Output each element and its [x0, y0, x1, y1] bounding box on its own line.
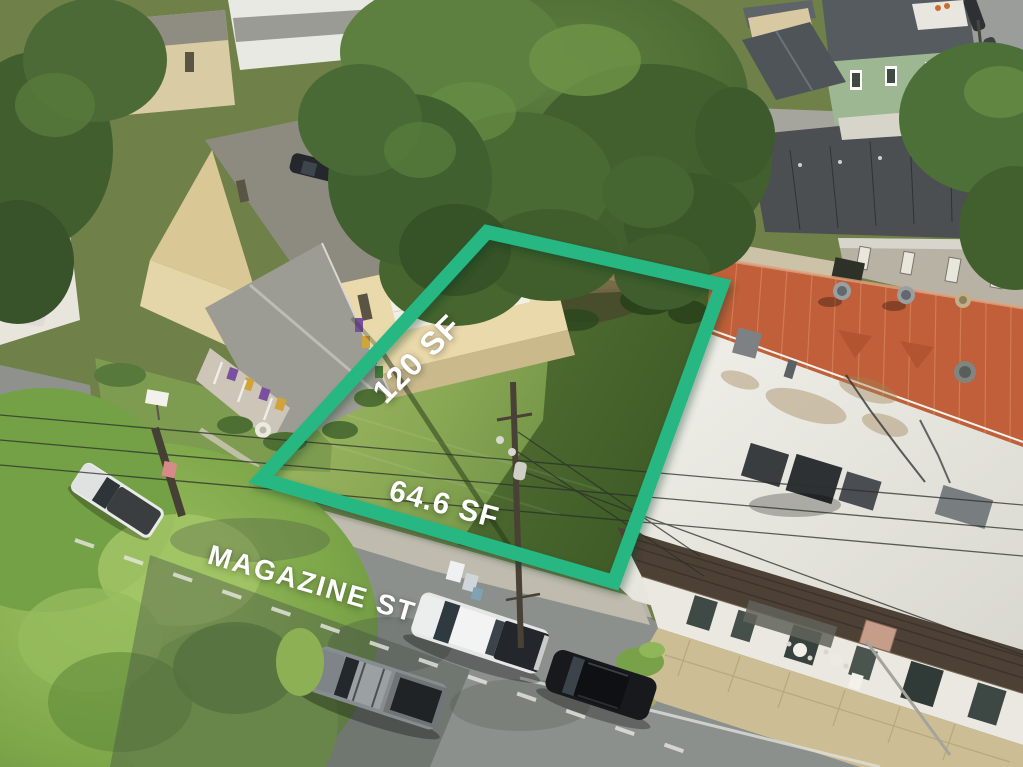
aerial-photo: 120 SF 64.6 SF MAGAZINE ST [0, 0, 1023, 767]
white-house-orange-chimneys [912, 0, 968, 30]
overhanging-leaves [276, 628, 324, 696]
cafe-table [793, 643, 807, 657]
cafe-table-2 [830, 654, 842, 666]
aerial-scene [0, 0, 1023, 767]
